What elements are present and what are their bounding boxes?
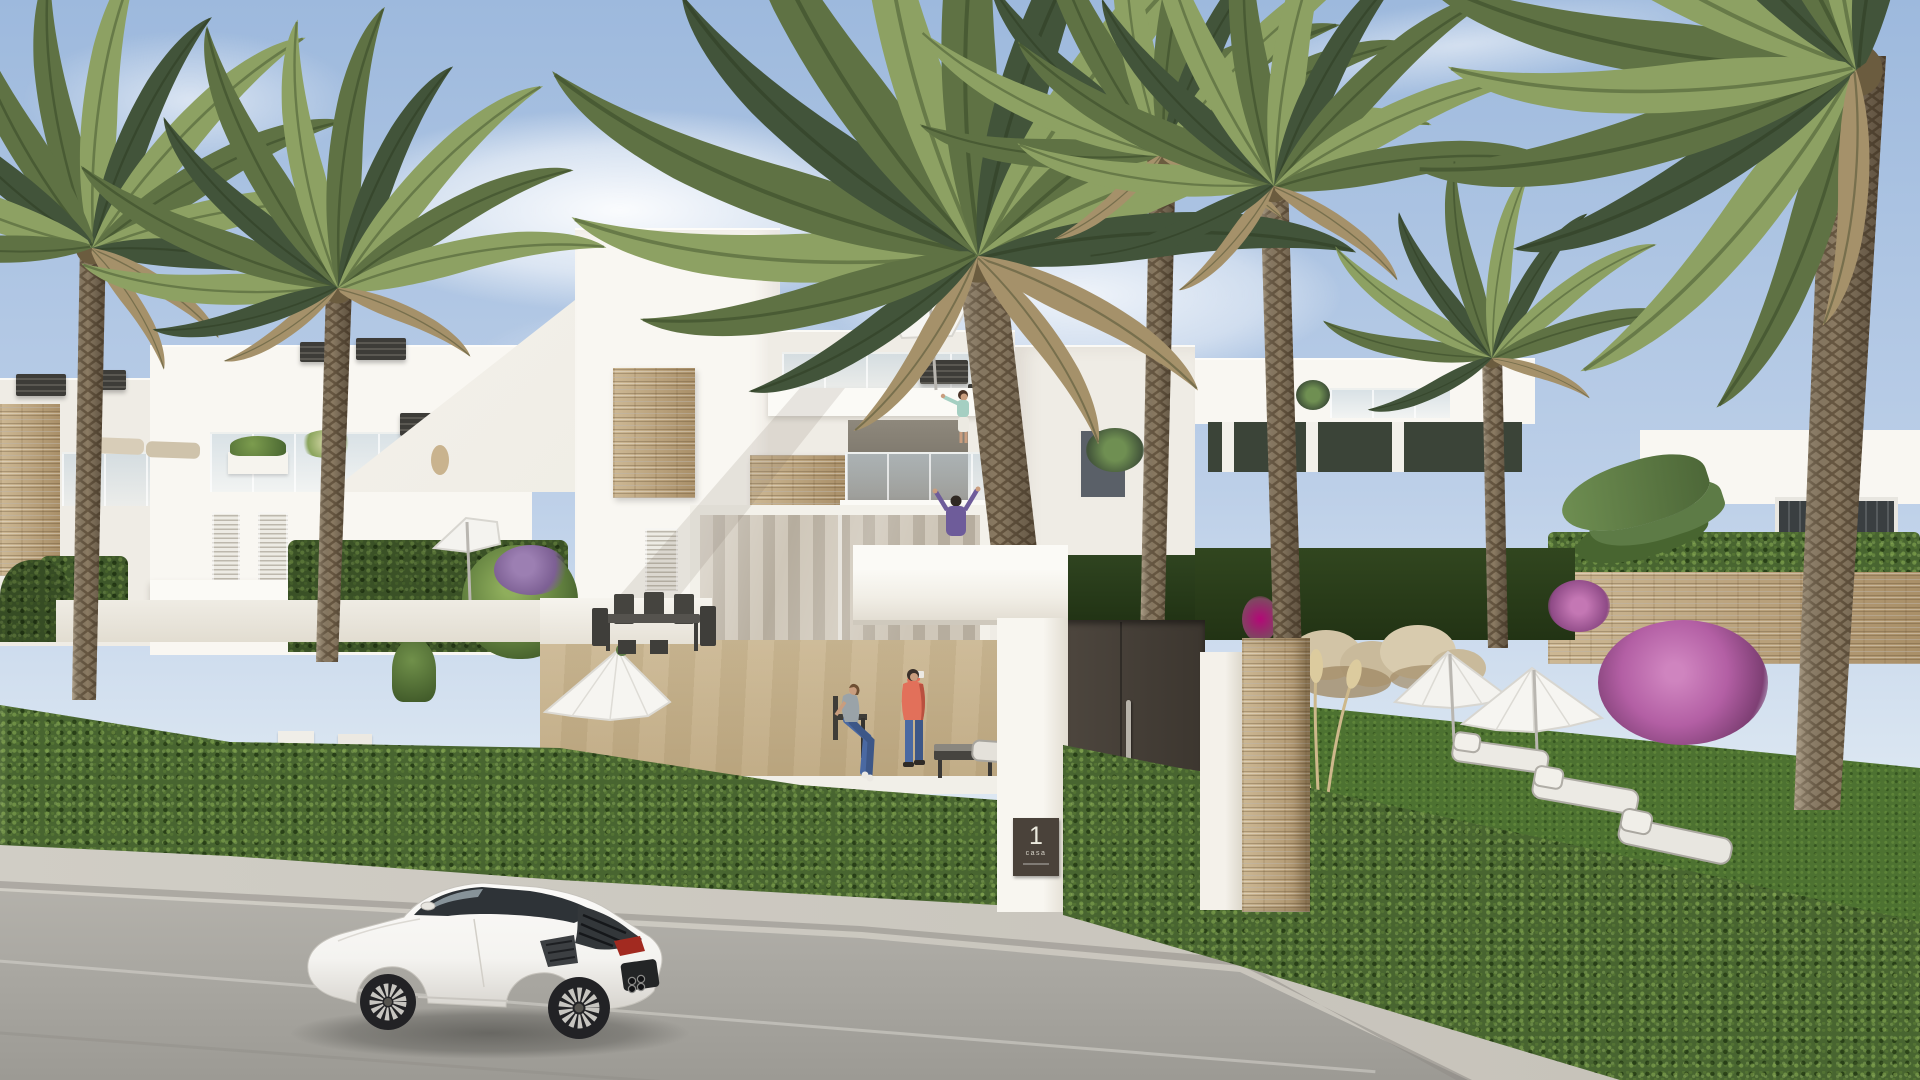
rear-wheel — [548, 977, 610, 1039]
street-scene: 1 casa — [0, 0, 1920, 1080]
car-layer — [0, 0, 1920, 1080]
side-mirror — [421, 902, 435, 910]
front-wheel — [360, 974, 416, 1030]
sports-car[interactable] — [290, 883, 690, 1059]
car-shadow — [290, 1007, 690, 1059]
